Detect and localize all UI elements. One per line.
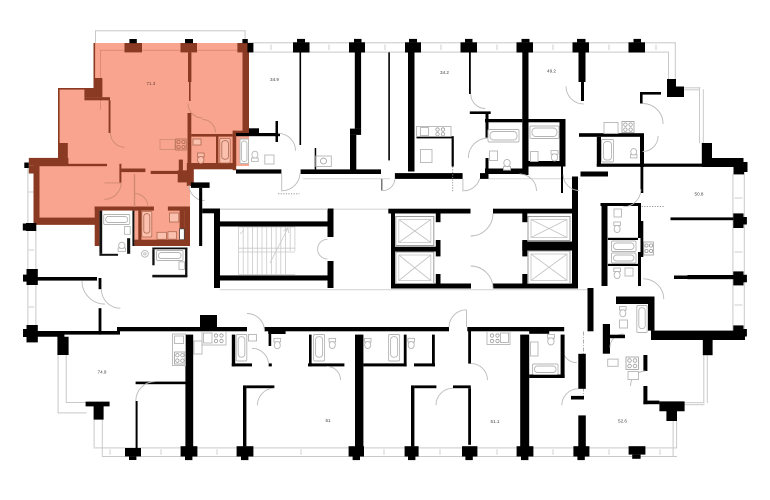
svg-text:50.8: 50.8 <box>695 192 704 197</box>
svg-text:74.9: 74.9 <box>98 370 107 375</box>
svg-text:34.9: 34.9 <box>270 77 279 82</box>
svg-text:49.2: 49.2 <box>547 69 556 74</box>
svg-text:34.2: 34.2 <box>440 70 449 75</box>
svg-text:51.1: 51.1 <box>491 419 500 424</box>
svg-text:51: 51 <box>325 418 331 423</box>
svg-text:71.3: 71.3 <box>146 81 155 86</box>
svg-text:52.6: 52.6 <box>618 419 627 424</box>
